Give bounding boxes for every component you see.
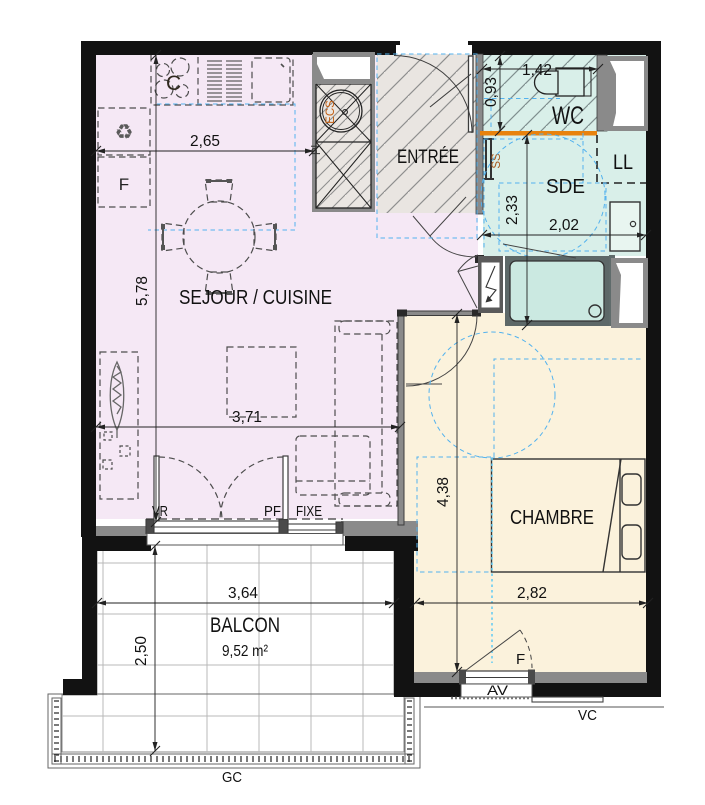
svg-text:AV: AV	[487, 682, 509, 698]
svg-text:WC: WC	[552, 102, 584, 130]
svg-text:2,02: 2,02	[549, 217, 579, 234]
svg-text:5,78: 5,78	[134, 276, 151, 306]
svg-text:SEJOUR / CUISINE: SEJOUR / CUISINE	[179, 286, 332, 309]
svg-text:F: F	[119, 175, 129, 194]
svg-text:4,38: 4,38	[435, 477, 452, 507]
svg-text:SDE: SDE	[546, 175, 585, 198]
svg-text:9,52 m²: 9,52 m²	[222, 643, 269, 660]
svg-text:ECS: ECS	[325, 100, 337, 124]
svg-text:3,64: 3,64	[228, 585, 258, 602]
svg-text:2,50: 2,50	[133, 636, 150, 666]
svg-text:FIXE: FIXE	[296, 504, 322, 520]
svg-text:VC: VC	[578, 707, 597, 724]
svg-text:2,33: 2,33	[504, 195, 521, 225]
svg-text:0,93: 0,93	[483, 77, 500, 107]
svg-text:CHAMBRE: CHAMBRE	[510, 506, 594, 529]
svg-text:3,71: 3,71	[232, 409, 262, 426]
svg-text:PF: PF	[264, 504, 281, 520]
svg-text:2,65: 2,65	[190, 133, 220, 150]
svg-text:SS: SS	[491, 153, 503, 169]
svg-text:C: C	[166, 72, 181, 95]
svg-text:ENTRÉE: ENTRÉE	[397, 147, 459, 168]
svg-text:F: F	[516, 651, 525, 668]
svg-text:BALCON: BALCON	[210, 614, 280, 637]
svg-text:Pl: Pl	[311, 145, 323, 155]
svg-text:2,82: 2,82	[517, 585, 547, 602]
svg-text:♻: ♻	[115, 121, 134, 144]
svg-text:1,42: 1,42	[522, 62, 552, 79]
svg-text:LL: LL	[613, 151, 633, 174]
svg-text:GC: GC	[222, 769, 242, 786]
